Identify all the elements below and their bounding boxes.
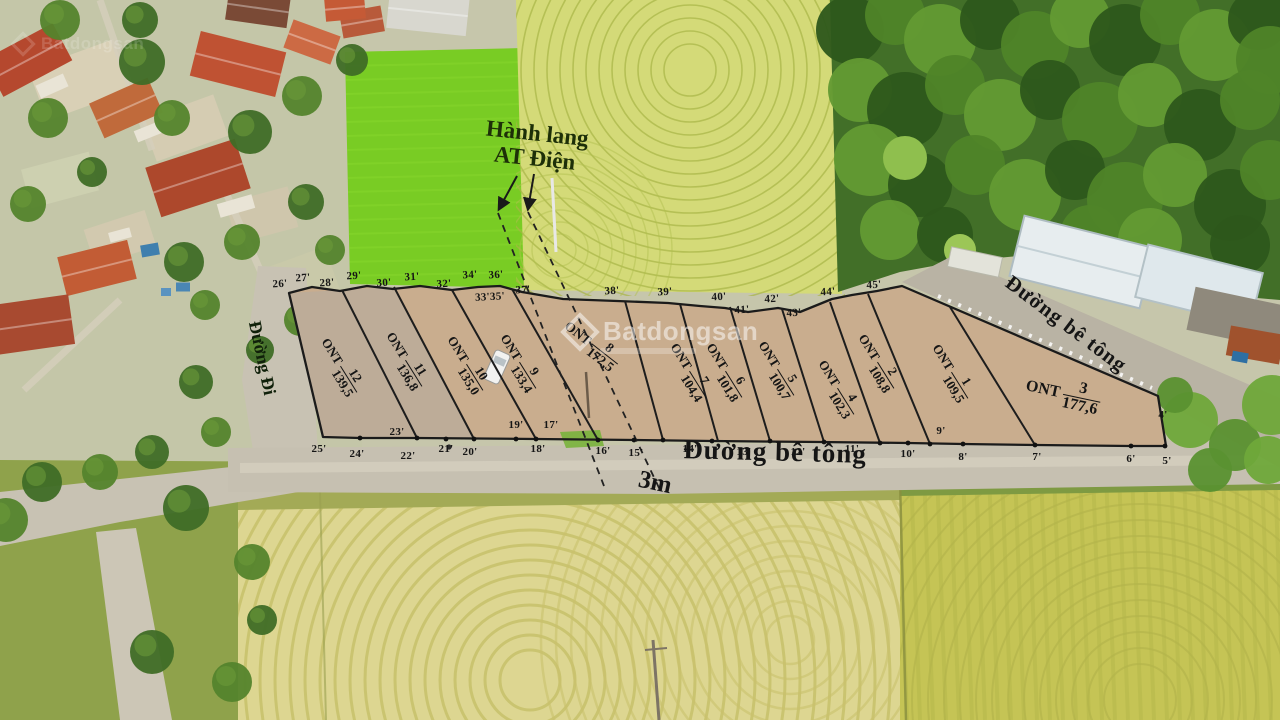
vertex-label-bottom: 4' (1158, 409, 1167, 421)
vertex-label-bottom: 8' (958, 451, 967, 463)
vertex-label-bottom: 11' (845, 443, 859, 455)
vertex-label-top: 42' (764, 293, 780, 306)
vertex-label-top: 33'35' (475, 290, 506, 304)
vertex-label-top: 31' (404, 271, 420, 284)
watermark-subline (600, 348, 696, 354)
vertex-label-bottom: 22' (401, 450, 416, 462)
watermark-text: Batdongsan (41, 34, 144, 54)
plot-landuse-code: ONT (383, 329, 411, 361)
plot-landuse-code: ONT (444, 333, 472, 365)
vertex-label-top: 43' (786, 307, 802, 320)
aerial-photo-scene (0, 0, 1280, 720)
vertex-label-top: 28' (319, 277, 335, 290)
vertex-label-top: 40' (711, 291, 727, 304)
watermark-text: Batdongsan (603, 316, 758, 347)
vertex-label-bottom: 19' (509, 419, 524, 431)
vertex-label-bottom: 5' (1162, 455, 1171, 467)
vertex-label-bottom: 6' (1126, 453, 1135, 465)
vertex-label-top: 39' (657, 286, 673, 299)
vertex-label-top: 26' (272, 278, 288, 291)
vertex-label-top: 41' (734, 304, 750, 317)
vertex-label-bottom: 12' (791, 446, 806, 458)
vertex-label-bottom: 20' (463, 446, 478, 458)
plot-landuse-code: ONT (1024, 377, 1062, 402)
vertex-label-bottom: 17' (544, 419, 559, 431)
plot-landuse-code: ONT (318, 335, 346, 367)
vertex-label-top: 44' (820, 286, 836, 299)
plot-landuse-code: ONT (929, 341, 957, 373)
vertex-label-bottom: 9' (936, 425, 945, 437)
vertex-label-bottom: 23' (390, 426, 405, 438)
vertex-label-top: 37' (515, 284, 531, 297)
vertex-label-bottom: 10' (901, 448, 916, 460)
vertex-label-bottom: 15' (629, 447, 644, 459)
house-roof (324, 0, 366, 22)
vertex-label-top: 34' (462, 269, 478, 282)
vertex-label-top: 29' (346, 270, 362, 283)
watermark-faint: Batdongsan (14, 34, 144, 54)
vertex-label-bottom: 14' (683, 443, 698, 455)
plot-landuse-code: ONT (855, 331, 883, 363)
house-roof (386, 0, 470, 36)
watermark-diamond-icon (10, 31, 35, 56)
vertex-label-top: 45' (866, 279, 882, 292)
vertex-label-bottom: 13' (737, 446, 752, 458)
plot-number: 3 (1078, 380, 1089, 398)
vertex-label-top: 27' (295, 272, 311, 285)
aerial-land-plot-map: Hành lang AT Điện Đường Đi Đường bê tông… (0, 0, 1280, 720)
vertex-label-top: 30' (376, 277, 392, 290)
vertex-label-bottom: 25' (312, 443, 327, 455)
vertex-label-bottom: 18' (531, 443, 546, 455)
power-corridor-label: Hành lang AT Điện (482, 115, 590, 176)
vertex-label-top: 32' (436, 278, 452, 291)
watermark: Batdongsan (566, 316, 758, 347)
vertex-label-bottom: 21' (439, 443, 454, 455)
vertex-label-bottom: 16' (596, 445, 611, 457)
green-paddy-field (345, 48, 525, 288)
vertex-label-top: 38' (604, 285, 620, 298)
vertex-label-bottom: 7' (1032, 451, 1041, 463)
bottom-road-label: Đường bê tông (683, 434, 867, 470)
vertex-label-top: 36' (488, 269, 504, 282)
watermark-diamond-icon (560, 312, 600, 352)
vertex-label-bottom: 24' (350, 448, 365, 460)
plot-landuse-code: ONT (815, 357, 843, 389)
plot-landuse-code: ONT (755, 338, 783, 370)
plot-landuse-code: ONT (497, 331, 525, 363)
